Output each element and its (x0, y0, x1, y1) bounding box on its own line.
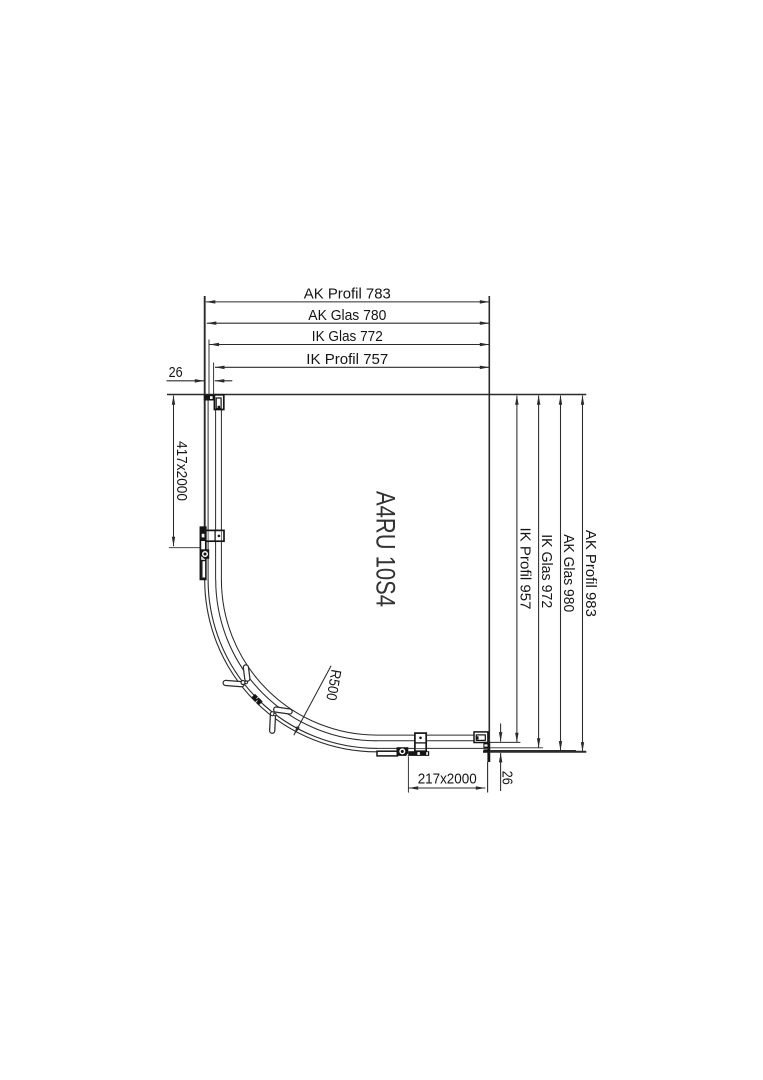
svg-text:IK Glas 772: IK Glas 772 (312, 329, 383, 345)
svg-text:AK Profil 983: AK Profil 983 (582, 530, 598, 617)
svg-text:26: 26 (498, 771, 514, 785)
svg-text:IK Profil 757: IK Profil 757 (306, 352, 388, 368)
svg-text:217x2000: 217x2000 (418, 772, 477, 788)
svg-text:AK Glas 980: AK Glas 980 (560, 534, 576, 612)
svg-text:IK Glas 972: IK Glas 972 (538, 534, 554, 608)
svg-text:IK Profil 957: IK Profil 957 (516, 528, 532, 610)
svg-text:A4RU 10S4: A4RU 10S4 (371, 491, 401, 607)
svg-text:AK Glas 780: AK Glas 780 (308, 308, 386, 324)
svg-text:AK Profil 783: AK Profil 783 (304, 287, 391, 303)
svg-text:417x2000: 417x2000 (173, 441, 189, 501)
svg-text:26: 26 (169, 365, 183, 381)
